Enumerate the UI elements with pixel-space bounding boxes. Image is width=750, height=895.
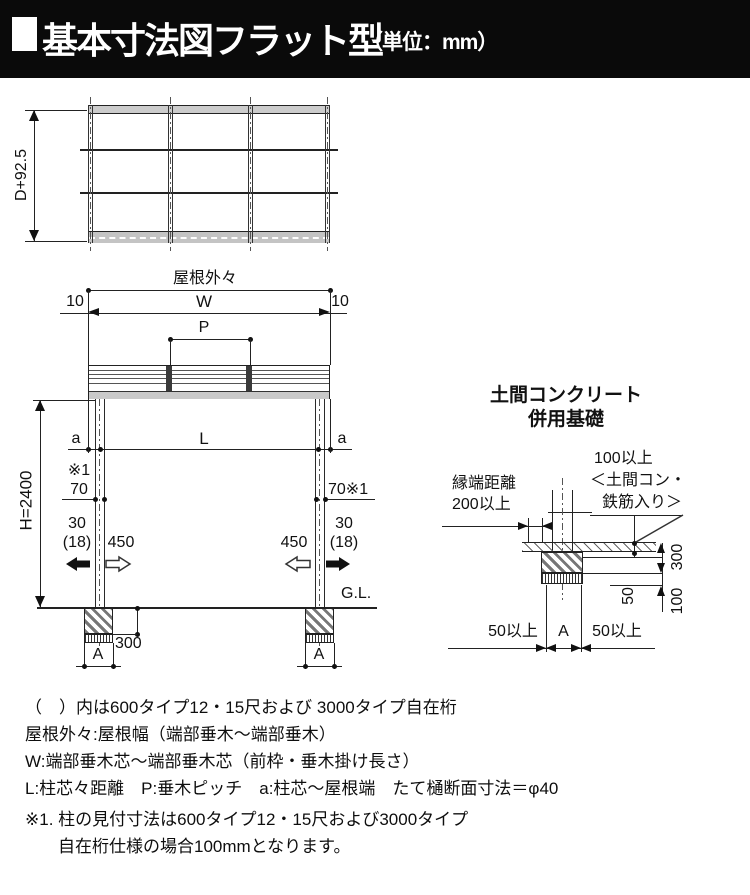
ext-line (25, 241, 87, 242)
offset-right-dim: 10 (323, 294, 357, 311)
ext-line (250, 339, 251, 365)
gravel-left (84, 634, 113, 643)
col-width-right-dim: 70※1 (328, 482, 368, 499)
height-dim: H=2400 (18, 466, 35, 536)
title-bullet-icon (12, 17, 37, 51)
detail-gravel-dim: 50 (621, 571, 637, 621)
edge-note-1: 縁端距離 (452, 476, 516, 493)
note-line: （ ）内は600タイプ12・15尺および 3000タイプ自在桁 (25, 699, 457, 717)
footing-width-right-dim: A (308, 647, 330, 664)
footing-depth-dim: 300 (115, 636, 142, 653)
fascia-line (89, 383, 329, 384)
dim-line (442, 526, 552, 527)
arrow-down-icon (29, 230, 39, 241)
slab-note-2: ＜土間コン・ (590, 473, 686, 490)
dim-dot (93, 497, 98, 502)
ext-line (583, 557, 662, 558)
dim-line (68, 449, 352, 450)
dim-line (662, 543, 663, 612)
note-line: ※1. 柱の見付寸法は600タイプ12・15尺および3000タイプ (25, 811, 468, 829)
ext-line (330, 399, 331, 453)
a-right-dim: a (332, 431, 352, 448)
rafter-centerline (170, 97, 171, 251)
detail-title-line1: 土間コンクリート (480, 386, 652, 406)
dim-dot (102, 497, 107, 502)
out-left-alt-dim: (18) (55, 535, 99, 552)
footing-left (84, 608, 113, 634)
leader-dot (632, 541, 637, 546)
dim-dot (135, 606, 140, 611)
edge-note-2: 200以上 (452, 497, 511, 514)
fascia-line (89, 378, 329, 379)
dim-line (60, 313, 347, 314)
dim-dot (316, 447, 321, 452)
rafter-mark (246, 366, 252, 391)
dim-line (325, 499, 375, 500)
a-left-dim: a (66, 431, 86, 448)
dim-line (137, 608, 138, 634)
outline-arrow-left-icon (286, 557, 310, 571)
unit-label: （単位：mm） (362, 26, 497, 56)
arrow-down-icon (657, 563, 665, 573)
pitch-dim: P (180, 320, 228, 337)
note-line: L:柱芯々距離 P:垂木ピッチ a:柱芯〜屋根端 たて樋断面寸法＝φ40 (25, 780, 558, 798)
rafter-centerline (90, 97, 91, 251)
purlin-line (80, 149, 338, 151)
arrow-up-icon (35, 400, 45, 411)
dim-line (88, 290, 330, 291)
footing-section (541, 552, 583, 573)
out-left-dim: 30 (59, 516, 95, 533)
arrow-left-icon (581, 644, 591, 652)
fascia-line (89, 374, 329, 375)
rafter-centerline (327, 97, 328, 251)
arrow-right-icon (571, 644, 581, 652)
gravel-right (305, 634, 334, 643)
footing-width-left-dim: A (87, 647, 109, 664)
dim-line (62, 499, 95, 500)
ext-line (542, 518, 543, 542)
arrow-left-icon (542, 522, 552, 530)
ext-line (330, 290, 331, 365)
dim-line (40, 400, 41, 607)
dim-dot (332, 664, 337, 669)
out-right-dim: 30 (324, 516, 364, 533)
title-banner: 基本寸法図フラット型 （単位：mm） (0, 0, 750, 78)
in-left-dim: 450 (99, 535, 143, 552)
arrow-down-icon (35, 596, 45, 607)
leader-line (590, 515, 683, 516)
arrow-right-icon (518, 522, 528, 530)
leader-dot (632, 551, 637, 556)
note-line: 屋根外々:屋根幅（端部垂木〜端部垂木） (25, 726, 336, 744)
roof-panel-frame (88, 105, 330, 243)
detail-title-line2: 併用基礎 (480, 410, 652, 430)
dim-dot (314, 497, 319, 502)
arrow-right-icon (536, 644, 546, 652)
offset-left-dim: 10 (58, 294, 92, 311)
purlin-line (80, 192, 338, 194)
plan-depth-dim: D+92.5 (14, 144, 30, 206)
detail-width-dim: A (552, 624, 575, 641)
page-title: 基本寸法図フラット型 (42, 12, 382, 64)
ext-line (88, 399, 89, 453)
column-right (315, 399, 325, 607)
dim-line (34, 110, 35, 241)
slab-note-3: 鉄筋入り＞ (602, 495, 682, 512)
ext-line (25, 110, 87, 111)
dim-line (170, 339, 250, 340)
roof-outer-label: 屋根外々 (150, 271, 260, 288)
arrow-up-icon (657, 586, 665, 596)
solid-arrow-right-icon (326, 557, 350, 571)
in-right-dim: 450 (272, 535, 316, 552)
solid-arrow-left-icon (66, 557, 90, 571)
rafter-mark (166, 366, 172, 391)
ext-line (581, 585, 582, 652)
dim-dot (111, 664, 116, 669)
out-right-alt-dim: (18) (320, 535, 368, 552)
ext-line (528, 518, 529, 542)
ground-label: G.L. (341, 586, 371, 603)
break-line (548, 512, 592, 513)
rear-frame-dashed-line (89, 237, 329, 239)
beam-strip (89, 391, 329, 399)
ext-line (546, 585, 547, 652)
detail-slab-dim: 100 (670, 571, 686, 631)
column-left (95, 399, 105, 607)
ext-line (170, 339, 171, 365)
arrow-up-icon (657, 543, 665, 553)
ext-line (33, 400, 95, 401)
note-line: W:端部垂木芯〜端部垂木芯（前枠・垂木掛け長さ） (25, 753, 419, 771)
dim-dot (323, 497, 328, 502)
note-line: 自在桁仕様の場合100mmとなります。 (58, 838, 350, 856)
slab-note-1: 100以上 (594, 451, 653, 468)
rafter-centerline (250, 97, 251, 251)
detail-margin-right-dim: 50以上 (587, 624, 647, 641)
footing-right (305, 608, 334, 634)
width-dim: W (180, 293, 228, 311)
outline-arrow-right-icon (106, 557, 130, 571)
arrow-up-icon (29, 110, 39, 121)
ext-line (88, 290, 89, 365)
note-ref: ※1 (62, 463, 96, 480)
dim-dot (82, 664, 87, 669)
gravel-section (541, 573, 583, 584)
dimension-diagram-page: 基本寸法図フラット型 （単位：mm） D+92.5 屋根外々 (0, 0, 750, 895)
detail-margin-left-dim: 50以上 (483, 624, 543, 641)
span-dim: L (180, 430, 228, 448)
dim-dot (303, 664, 308, 669)
dim-dot (98, 447, 103, 452)
fascia-line (89, 370, 329, 371)
col-width-left-dim: 70 (62, 482, 96, 499)
arrow-left-icon (546, 644, 556, 652)
front-frame-bar (89, 106, 329, 114)
